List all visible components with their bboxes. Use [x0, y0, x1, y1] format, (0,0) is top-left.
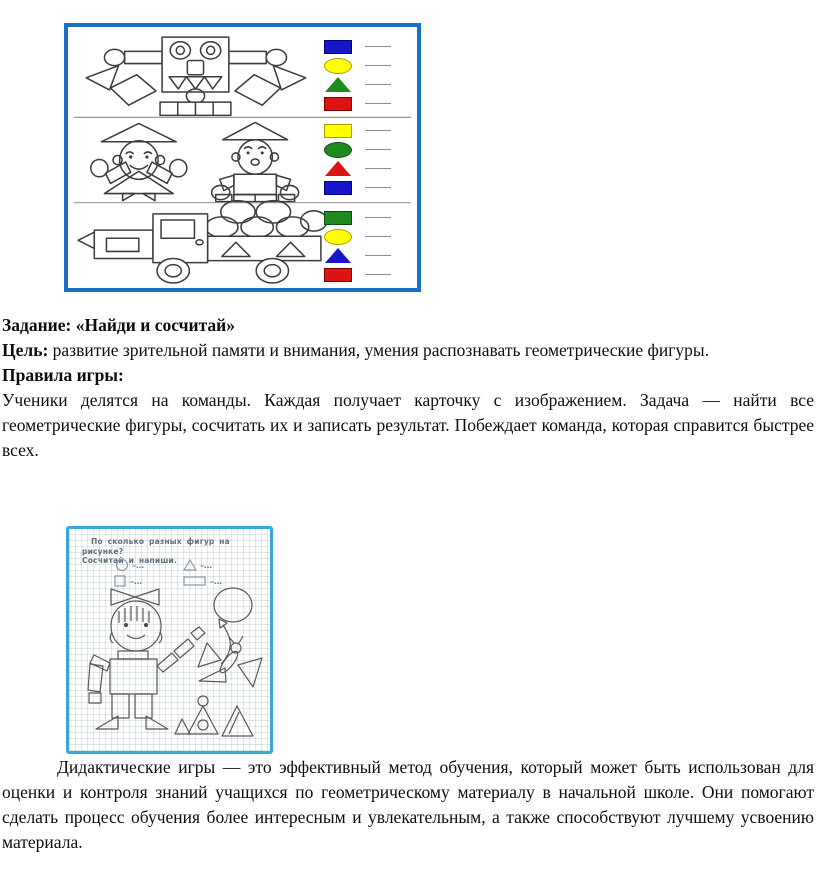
rect-shape: [324, 211, 352, 225]
legend-item-ellipse: [322, 227, 412, 246]
worksheet2-drawing: [69, 529, 270, 751]
legend-item-ellipse: [322, 56, 412, 75]
legend-item-rect: [322, 178, 412, 197]
answer-line: [365, 65, 391, 66]
legend-item-rect: [322, 208, 412, 227]
worksheet-image-1: [64, 23, 421, 292]
answer-line: [365, 84, 391, 85]
goal-label: Цель:: [2, 340, 48, 360]
answer-line: [365, 168, 391, 169]
goal-paragraph: Цель: развитие зрительной памяти и внима…: [2, 338, 814, 363]
answer-line: [365, 187, 391, 188]
rect-shape: [324, 181, 352, 195]
watermark: ····················: [203, 742, 263, 748]
legend-item-triangle: [322, 159, 412, 178]
triangle-shape: [325, 77, 351, 92]
ellipse-shape: [324, 229, 352, 245]
robot-figure: [86, 37, 306, 115]
legend-item-ellipse: [322, 140, 412, 159]
legend-item-rect: [322, 37, 412, 56]
answer-line: [365, 236, 391, 237]
legend-item-rect: [322, 121, 412, 140]
ellipse-shape: [324, 58, 352, 74]
worksheet-image-2: По сколько разных фигур на рисунке? Сосч…: [66, 526, 273, 754]
triangle-shape: [325, 248, 351, 263]
ellipse-shape: [324, 142, 352, 158]
rules-title: Правила игры:: [2, 363, 814, 388]
rect-shape: [324, 124, 352, 138]
rect-shape: [324, 40, 352, 54]
girl2-figure: [88, 588, 252, 729]
answer-line: [365, 149, 391, 150]
rect-shape: [324, 268, 352, 282]
answer-line: [365, 274, 391, 275]
goal-text: развитие зрительной памяти и внимания, у…: [53, 340, 709, 360]
answer-line: [365, 217, 391, 218]
text-block: Задание: «Найди и сосчитай» Цель: развит…: [2, 313, 814, 463]
legend-group-robot: [322, 37, 412, 113]
answer-line: [365, 46, 391, 47]
legend-group-children: [322, 121, 412, 197]
conclusion-paragraph: Дидактические игры — это эффективный мет…: [2, 755, 814, 855]
document-page: Задание: «Найди и сосчитай» Цель: развит…: [0, 0, 816, 873]
legend-item-rect: [322, 265, 412, 284]
legend-item-triangle: [322, 246, 412, 265]
legend-group-truck: [322, 208, 412, 284]
answer-line: [365, 255, 391, 256]
girl-figure: [91, 123, 187, 200]
truck-figure: [78, 201, 327, 283]
triangles-figure: [175, 696, 253, 736]
rect-shape: [324, 97, 352, 111]
legend-item-rect: [322, 94, 412, 113]
answer-line: [365, 130, 391, 131]
answer-line: [365, 103, 391, 104]
rules-paragraph: Ученики делятся на команды. Каждая получ…: [2, 388, 814, 463]
legend-item-triangle: [322, 75, 412, 94]
triangle-shape: [325, 161, 351, 176]
task-title: Задание: «Найди и сосчитай»: [2, 313, 814, 338]
boy-figure: [212, 122, 299, 201]
